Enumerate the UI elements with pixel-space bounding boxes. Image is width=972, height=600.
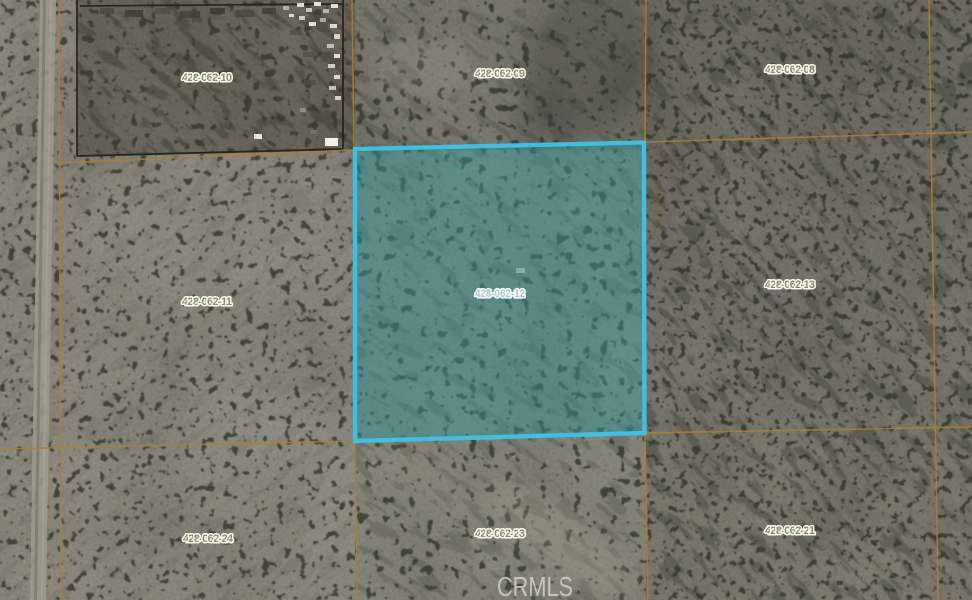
svg-text:428-062-13: 428-062-13 (765, 279, 815, 291)
svg-text:428-062-24: 428-062-24 (183, 533, 234, 545)
svg-text:428-062-21: 428-062-21 (765, 525, 815, 537)
svg-text:428-062-23: 428-062-23 (475, 528, 525, 540)
svg-text:428-062-10: 428-062-10 (182, 72, 232, 84)
svg-text:CRMLS: CRMLS (497, 571, 573, 600)
svg-text:428-062-11: 428-062-11 (182, 296, 232, 308)
svg-text:428-062-12: 428-062-12 (475, 288, 525, 300)
svg-text:428-062-09: 428-062-09 (475, 68, 525, 80)
svg-text:428-062-08: 428-062-08 (765, 64, 815, 76)
